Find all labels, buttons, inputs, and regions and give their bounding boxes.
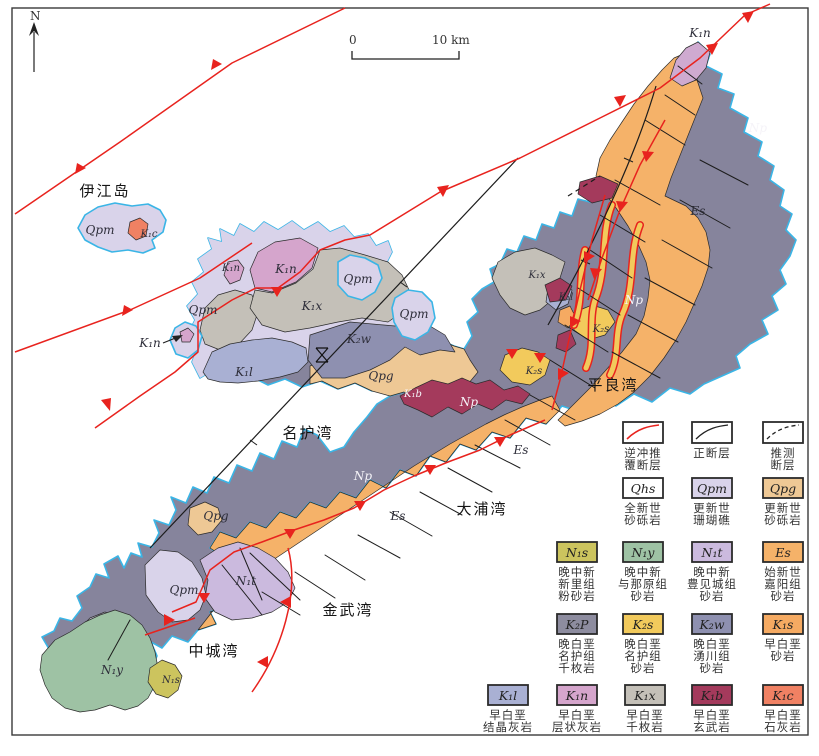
svg-text:结晶灰岩: 结晶灰岩	[483, 720, 533, 734]
label-qpm-lobe: Qpm	[344, 272, 373, 286]
label-k1b: K₁b	[403, 389, 422, 400]
svg-text:K₂w: K₂w	[698, 617, 724, 632]
label-k1l-peninsula: K₁l	[234, 365, 253, 379]
geological-map-figure: N 0 10 km 伊江岛 Qpm K₁c K₁n Np Es Np K₂s K…	[0, 0, 819, 756]
svg-text:砂砾岩: 砂砾岩	[624, 513, 662, 527]
svg-text:K₁c: K₁c	[771, 688, 793, 703]
label-qpm-islet2: Qpm	[400, 307, 429, 321]
label-np-2: Np	[624, 293, 644, 307]
label-n1s: N₁s	[161, 675, 180, 686]
legend-item-k1s: K₁s 早白垩 砂岩	[763, 614, 803, 663]
legend-item-inferred-fault: 推测 断层	[763, 422, 803, 472]
legend-item-k1b: K₁b 早白垩 玄武岩	[692, 685, 732, 734]
svg-text:粉砂岩: 粉砂岩	[558, 589, 596, 603]
svg-text:砂岩: 砂岩	[771, 649, 796, 663]
label-kin-bay: 金武湾	[322, 601, 373, 619]
svg-text:Qhs: Qhs	[631, 481, 656, 496]
svg-text:Qpm: Qpm	[697, 481, 727, 496]
svg-text:砂岩: 砂岩	[700, 661, 725, 675]
legend-item-es: Es 始新世 嘉阳组 砂岩	[763, 542, 803, 603]
legend-item-k1c: K₁c 早白垩 石灰岩	[763, 685, 803, 734]
legend-item-k1l: K₁l 早白垩 结晶灰岩	[483, 685, 533, 734]
svg-text:N₁y: N₁y	[630, 545, 655, 560]
scale-bar: 0 10 km	[349, 33, 470, 59]
label-k2s-1: K₂s	[592, 324, 610, 335]
north-label: N	[30, 9, 41, 23]
svg-text:断层: 断层	[771, 458, 796, 472]
svg-text:砂岩: 砂岩	[631, 661, 656, 675]
label-n1y: N₁y	[100, 663, 123, 677]
legend-item-k2s: K₂s 晚白垩 名护组 砂岩	[623, 614, 663, 675]
svg-text:K₁b: K₁b	[700, 688, 723, 703]
legend-item-k2p: K₂P 晚白垩 名护组 千枚岩	[557, 614, 597, 675]
svg-text:K₁x: K₁x	[633, 688, 655, 703]
svg-text:覆断层: 覆断层	[624, 458, 662, 472]
label-k1x-peninsula: K₁x	[301, 299, 323, 313]
label-qpm-ie: Qpm	[86, 223, 115, 237]
label-qpg-strip: Qpg	[368, 369, 394, 383]
label-es-3: Es	[390, 509, 406, 523]
label-k1c: K₁c	[139, 229, 157, 240]
label-qpm-west: Qpm	[189, 303, 218, 317]
label-n1t: N₁t	[235, 574, 256, 588]
scale-zero-label: 0	[349, 33, 357, 47]
svg-text:层状灰岩: 层状灰岩	[552, 720, 602, 734]
svg-text:玄武岩: 玄武岩	[693, 720, 731, 734]
svg-text:K₂s: K₂s	[632, 617, 654, 632]
label-k1n-peninsula: K₁n	[274, 262, 297, 276]
svg-text:N₁t: N₁t	[701, 545, 724, 560]
label-np-3: Np	[459, 395, 479, 409]
legend-item-n1s: N₁s 晚中新 新里组 粉砂岩	[557, 542, 597, 603]
label-k1x-coast: K₁x	[527, 270, 545, 281]
label-oura-bay: 大浦湾	[456, 500, 507, 518]
legend-item-n1t: N₁t 晚中新 豊见城组 砂岩	[687, 542, 737, 603]
svg-text:砂岩: 砂岩	[631, 589, 656, 603]
label-es-2: Es	[513, 443, 529, 457]
svg-text:正断层: 正断层	[693, 446, 731, 460]
svg-text:K₁n: K₁n	[565, 688, 588, 703]
svg-text:珊瑚礁: 珊瑚礁	[693, 513, 731, 527]
scale-ten-label: 10 km	[432, 33, 470, 47]
label-nago-bay: 名护湾	[282, 424, 333, 442]
legend-item-k1n: K₁n 早白垩 层状灰岩	[552, 685, 602, 734]
legend-item-qhs: Qhs 全新世 砂砾岩	[623, 478, 663, 527]
svg-text:石灰岩: 石灰岩	[764, 720, 802, 734]
label-hirara-bay: 平良湾	[587, 376, 638, 394]
label-qpg-sw: Qpg	[203, 509, 229, 523]
legend-item-normal-fault: 正断层	[692, 422, 732, 460]
legend-item-qpm: Qpm 更新世 珊瑚礁	[692, 478, 732, 527]
label-k1n-arrow: K₁n	[138, 336, 161, 350]
svg-text:N₁s: N₁s	[565, 545, 588, 560]
svg-text:千枚岩: 千枚岩	[626, 720, 664, 734]
svg-text:K₁l: K₁l	[498, 688, 517, 703]
svg-text:Es: Es	[774, 545, 791, 560]
label-np-1: Np	[748, 121, 768, 135]
map-canvas: N 0 10 km 伊江岛 Qpm K₁c K₁n Np Es Np K₂s K…	[0, 0, 819, 756]
svg-text:砂砾岩: 砂砾岩	[764, 513, 802, 527]
legend: 逆冲推 覆断层 正断层 推测 断层 Qhs 全新世 砂砾岩 Qpm 更新世 珊瑚…	[483, 422, 803, 734]
label-k1n-ne: K₁n	[688, 26, 711, 40]
label-k2s-2: K₂s	[525, 366, 543, 377]
svg-text:K₁s: K₁s	[772, 617, 794, 632]
svg-text:千枚岩: 千枚岩	[558, 661, 596, 675]
legend-item-qpg: Qpg 更新世 砂砾岩	[763, 478, 803, 527]
svg-text:砂岩: 砂岩	[700, 589, 725, 603]
label-k2w: K₂w	[346, 332, 372, 346]
label-k1n-blob: K₁n	[221, 263, 240, 274]
label-nakagusuku-bay: 中城湾	[188, 642, 239, 660]
svg-text:砂岩: 砂岩	[771, 589, 796, 603]
north-arrow: N	[29, 9, 41, 72]
legend-item-k2w: K₂w 晚白垩 湧川组 砂岩	[692, 614, 732, 675]
label-k1l-coast: K₁l	[558, 292, 574, 303]
legend-item-thrust-fault: 逆冲推 覆断层	[623, 422, 663, 472]
label-ie-island: 伊江岛	[79, 182, 130, 200]
label-es-1: Es	[690, 204, 706, 218]
legend-item-n1y: N₁y 晚中新 与那原组 砂岩	[618, 542, 668, 603]
label-qpm-sw: Qpm	[170, 583, 199, 597]
legend-item-k1x: K₁x 早白垩 千枚岩	[625, 685, 665, 734]
svg-text:K₂P: K₂P	[565, 617, 589, 632]
svg-text:Qpg: Qpg	[770, 481, 796, 496]
label-np-4: Np	[353, 469, 373, 483]
